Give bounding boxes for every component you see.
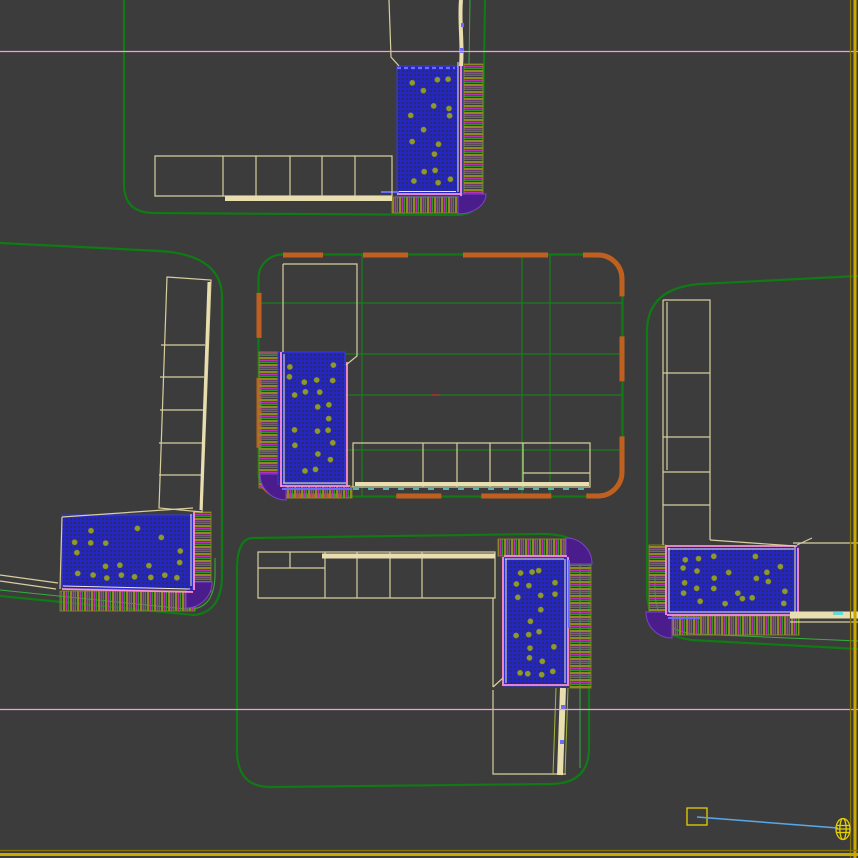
hedge-top-park-bottom[interactable] [392, 197, 464, 213]
tree-dot [539, 672, 544, 677]
hedge-left-park-bottom[interactable] [60, 591, 195, 611]
tree-dot [103, 564, 108, 569]
tree-dot [526, 632, 531, 637]
tree-dot [135, 526, 140, 531]
tree-dot [177, 560, 182, 565]
scene-svg[interactable] [0, 0, 858, 858]
tree-dot [781, 601, 786, 606]
tree-dot [726, 570, 731, 575]
park-left[interactable] [62, 515, 193, 589]
tree-dot [410, 80, 415, 85]
tree-dot [146, 563, 151, 568]
tree-dot [514, 633, 519, 638]
tree-dot [178, 548, 183, 553]
tree-dot [75, 571, 80, 576]
tree-dot [448, 177, 453, 182]
tree-dot [302, 380, 307, 385]
tree-dot [162, 573, 167, 578]
hedge-bottom-park-top[interactable] [498, 539, 565, 556]
tree-dot [132, 574, 137, 579]
tree-dot [315, 451, 320, 456]
tree-dot [433, 168, 438, 173]
tree-dot [303, 389, 308, 394]
tree-dot [292, 443, 297, 448]
tree-dot [435, 77, 440, 82]
tree-dot [292, 392, 297, 397]
tree-dot [148, 575, 153, 580]
tree-dot [530, 569, 535, 574]
tree-dot [302, 468, 307, 473]
tree-dot [735, 591, 740, 596]
tree-dot [287, 374, 292, 379]
tree-dot [782, 589, 787, 594]
tree-dot [778, 564, 783, 569]
tree-dot [540, 659, 545, 664]
park-top[interactable] [397, 66, 462, 196]
tree-dot [436, 180, 441, 185]
tree-dot [313, 467, 318, 472]
tree-dot [528, 619, 533, 624]
tree-dot [694, 586, 699, 591]
hedge-right-park-left[interactable] [649, 545, 666, 615]
hedge-center-park-bottom[interactable] [282, 486, 352, 498]
hedge-top-park-right[interactable] [464, 64, 483, 196]
sidewalk-band-bottom-park [560, 688, 563, 775]
tree-dot [72, 540, 77, 545]
tree-dot [698, 599, 703, 604]
tree-dot [712, 576, 717, 581]
tree-dot [711, 586, 716, 591]
tree-dot [525, 671, 530, 676]
tree-dot [119, 573, 124, 578]
tree-dot [446, 106, 451, 111]
tree-dot [91, 572, 96, 577]
tree-dot [410, 139, 415, 144]
park-center[interactable] [278, 352, 345, 484]
tree-dot [432, 152, 437, 157]
tree-dot [538, 607, 543, 612]
tree-dot [88, 540, 93, 545]
tree-dot [551, 644, 556, 649]
tree-dot [117, 563, 122, 568]
tree-dot [764, 570, 769, 575]
tree-dot [753, 554, 758, 559]
tree-dot [550, 669, 555, 674]
tree-dot [515, 595, 520, 600]
tree-dot [103, 541, 108, 546]
park-bottom[interactable] [504, 557, 567, 686]
cyan-dash-right [833, 612, 843, 615]
tree-dot [683, 557, 688, 562]
tree-dot [421, 127, 426, 132]
tree-dot [315, 404, 320, 409]
tree-dot [681, 565, 686, 570]
tree-dot [694, 568, 699, 573]
viewport-canvas[interactable] [0, 0, 858, 858]
tree-dot [696, 556, 701, 561]
tree-dot [174, 575, 179, 580]
tree-dot [446, 77, 451, 82]
tree-dot [538, 593, 543, 598]
tree-dot [526, 583, 531, 588]
tree-dot [315, 429, 320, 434]
tree-dot [723, 601, 728, 606]
tree-dot [552, 580, 557, 585]
hedge-left-park-right[interactable] [194, 512, 211, 592]
tree-dot [408, 113, 413, 118]
tree-dot [552, 592, 557, 597]
park-right[interactable] [668, 546, 798, 614]
tree-dot [527, 655, 532, 660]
tree-dot [711, 554, 716, 559]
sidewalk-band-top-street [460, 0, 461, 66]
tree-dot [436, 142, 441, 147]
tree-dot [447, 113, 452, 118]
tree-dot [326, 416, 331, 421]
tree-dot [740, 596, 745, 601]
tree-dot [292, 427, 297, 432]
tree-dot [750, 595, 755, 600]
tree-dot [314, 377, 319, 382]
tree-dot [422, 169, 427, 174]
tree-dot [754, 576, 759, 581]
tree-dot [431, 103, 436, 108]
tree-dot [317, 390, 322, 395]
tree-dot [518, 670, 523, 675]
tree-dot [682, 580, 687, 585]
tree-dot [527, 646, 532, 651]
tree-dot [326, 428, 331, 433]
tree-dot [287, 364, 292, 369]
tree-dot [514, 581, 519, 586]
tree-dot [518, 570, 523, 575]
tree-dot [681, 591, 686, 596]
tree-dot [74, 550, 79, 555]
tree-dot [326, 402, 331, 407]
tree-dot [537, 629, 542, 634]
tree-dot [421, 88, 426, 93]
tree-dot [330, 378, 335, 383]
tree-dot [330, 440, 335, 445]
tree-dot [88, 528, 93, 533]
tree-dot [766, 579, 771, 584]
tree-dot [104, 575, 109, 580]
hedge-bottom-park-right[interactable] [570, 560, 591, 688]
tree-dot [536, 568, 541, 573]
tree-dot [331, 363, 336, 368]
tree-dot [411, 178, 416, 183]
tree-dot [328, 457, 333, 462]
hedge-center-park-left[interactable] [259, 352, 280, 488]
tree-dot [159, 535, 164, 540]
